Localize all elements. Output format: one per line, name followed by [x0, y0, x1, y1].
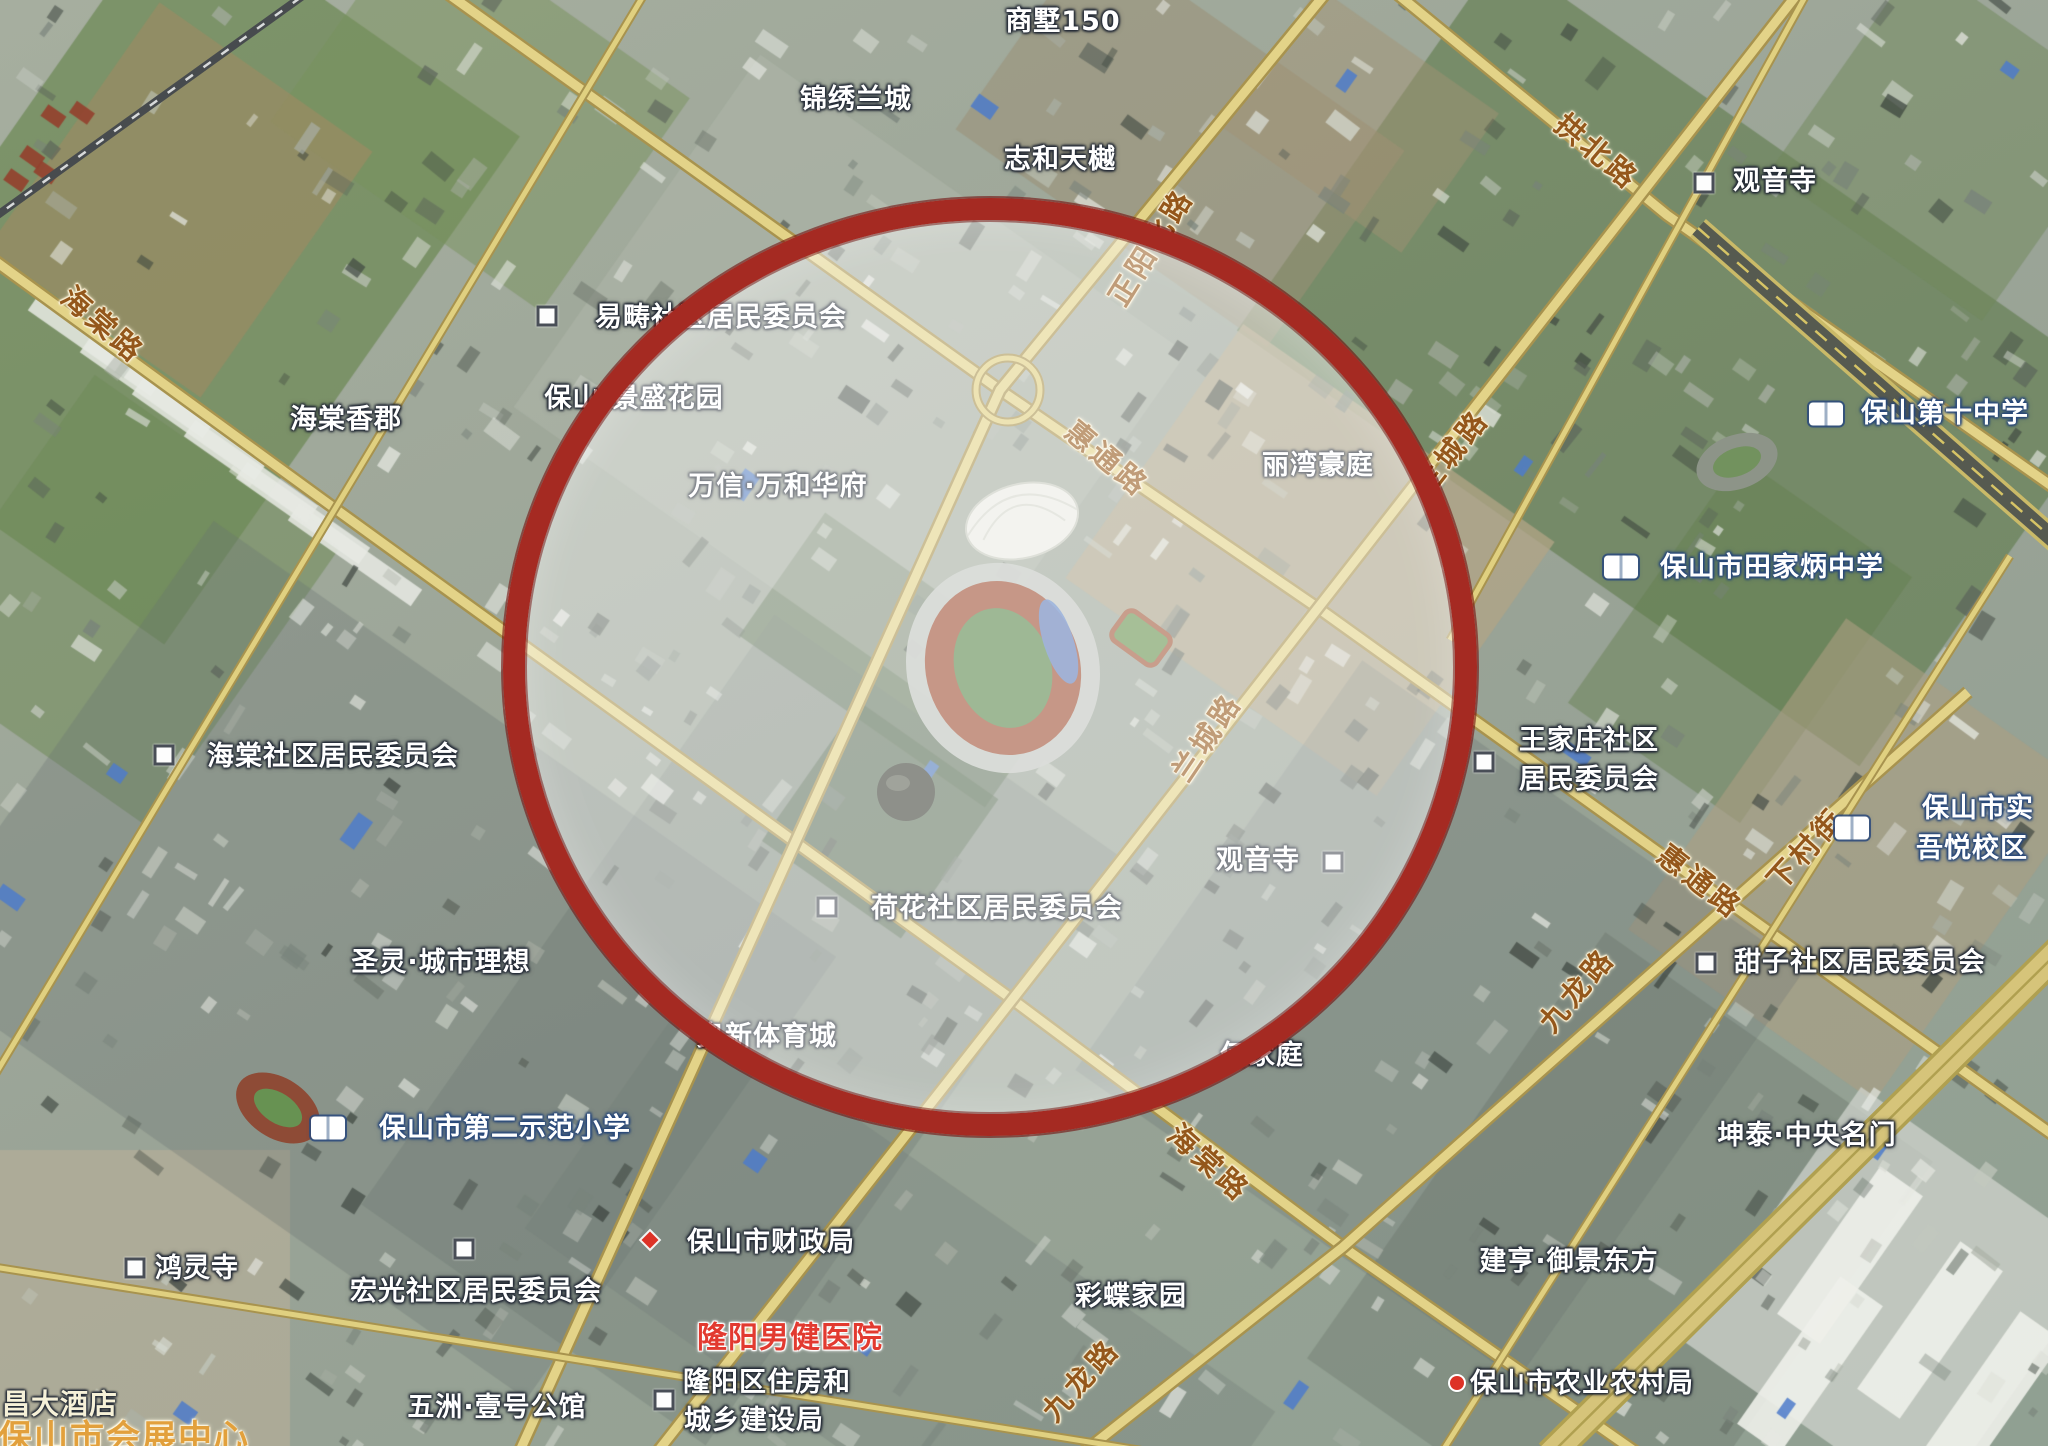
map-label-jinxiulancheng[interactable]: 锦绣兰城 [800, 83, 912, 117]
hongguang-marker-icon[interactable] [454, 1239, 475, 1260]
wangjiazhuang-marker-icon[interactable] [1474, 752, 1495, 773]
map-label-jiulonglu-s: 九龙路 [1034, 1331, 1127, 1429]
map-label-jiulonglu-e: 九龙路 [1531, 940, 1622, 1039]
map-label-diershifanxiaoxue[interactable]: 保山市第二示范小学 [379, 1112, 631, 1146]
map-label-shengling[interactable]: 圣灵·城市理想 [351, 946, 530, 980]
diershifan-book-icon[interactable] [311, 1117, 345, 1140]
map-label-huitonglu-e: 惠通路 [1650, 837, 1750, 927]
tianjiabing-book-icon[interactable] [1604, 556, 1638, 579]
map-label-haitanglu-nw: 海棠路 [54, 279, 153, 371]
map-label-gongbeilu: 拱北路 [1547, 106, 1646, 197]
map-label-xiacunjie: 下村街 [1759, 800, 1852, 898]
map-label-baoshanshishi[interactable]: 保山市实 [1922, 792, 2034, 826]
honglingsi-marker-icon[interactable] [125, 1258, 146, 1279]
map-label-wuyuexiaoqu[interactable]: 吾悦校区 [1916, 832, 2028, 866]
guanyinsi-n-marker-icon[interactable] [1694, 173, 1715, 194]
caizhengju-marker-icon[interactable] [642, 1232, 659, 1249]
map-label-zhufangju-2[interactable]: 城乡建设局 [684, 1404, 824, 1438]
map-label-jianheng[interactable]: 建亨·御景东方 [1479, 1245, 1658, 1279]
highlight-circle [503, 198, 1477, 1136]
map-label-longyangnanjian[interactable]: 隆阳男健医院 [697, 1319, 883, 1357]
haitangshequ-marker-icon[interactable] [154, 745, 175, 766]
map-label-zhufangju-1[interactable]: 隆阳区住房和 [683, 1366, 851, 1400]
map-label-baoshandishizhongxue[interactable]: 保山第十中学 [1861, 397, 2029, 431]
map-label-haitangshequ[interactable]: 海棠社区居民委员会 [207, 740, 459, 774]
map-label-zhihetianyue[interactable]: 志和天樾 [1004, 143, 1116, 177]
map-label-kuntai[interactable]: 坤泰·中央名门 [1717, 1119, 1896, 1153]
yichou-marker-icon[interactable] [537, 306, 558, 327]
map-label-nongyenongcunju[interactable]: 保山市农业农村局 [1470, 1367, 1694, 1401]
zhufangju-marker-icon[interactable] [654, 1390, 675, 1411]
map-label-wuzhouyihao[interactable]: 五洲·壹号公馆 [407, 1391, 586, 1425]
tianzishequ-marker-icon[interactable] [1696, 953, 1717, 974]
map-label-shangshu150[interactable]: 商墅150 [1005, 5, 1120, 39]
map-label-tianzishequ[interactable]: 甜子社区居民委员会 [1734, 946, 1986, 980]
map-label-huizhanzhongxin[interactable]: 保山市会展中心 [0, 1417, 250, 1446]
map-label-honglingsi[interactable]: 鸿灵寺 [155, 1252, 239, 1286]
map-label-tianjiabing[interactable]: 保山市田家炳中学 [1660, 551, 1884, 585]
shizhongxue-book-icon[interactable] [1809, 403, 1843, 426]
map-label-hongguangshequ[interactable]: 宏光社区居民委员会 [350, 1275, 602, 1309]
map-label-haitanglu-s: 海棠路 [1160, 1116, 1258, 1209]
map-label-guanyinsi-n[interactable]: 观音寺 [1733, 165, 1817, 199]
satellite-map[interactable]: 商墅150锦绣兰城志和天樾正阳北路拱北路观音寺海棠路易畴社区居民委员会保山·景盛… [0, 0, 2048, 1446]
map-label-haitangxiangjun[interactable]: 海棠香郡 [290, 403, 402, 437]
map-label-caizhengju[interactable]: 保山市财政局 [687, 1226, 855, 1260]
wuyue-book-icon[interactable] [1835, 817, 1869, 840]
map-label-caidiejiayuan[interactable]: 彩蝶家园 [1075, 1280, 1187, 1314]
map-label-wangjiazhuang-2[interactable]: 居民委员会 [1519, 763, 1659, 797]
nongye-marker-icon[interactable] [1450, 1376, 1464, 1390]
map-label-wangjiazhuang-1[interactable]: 王家庄社区 [1519, 724, 1659, 758]
